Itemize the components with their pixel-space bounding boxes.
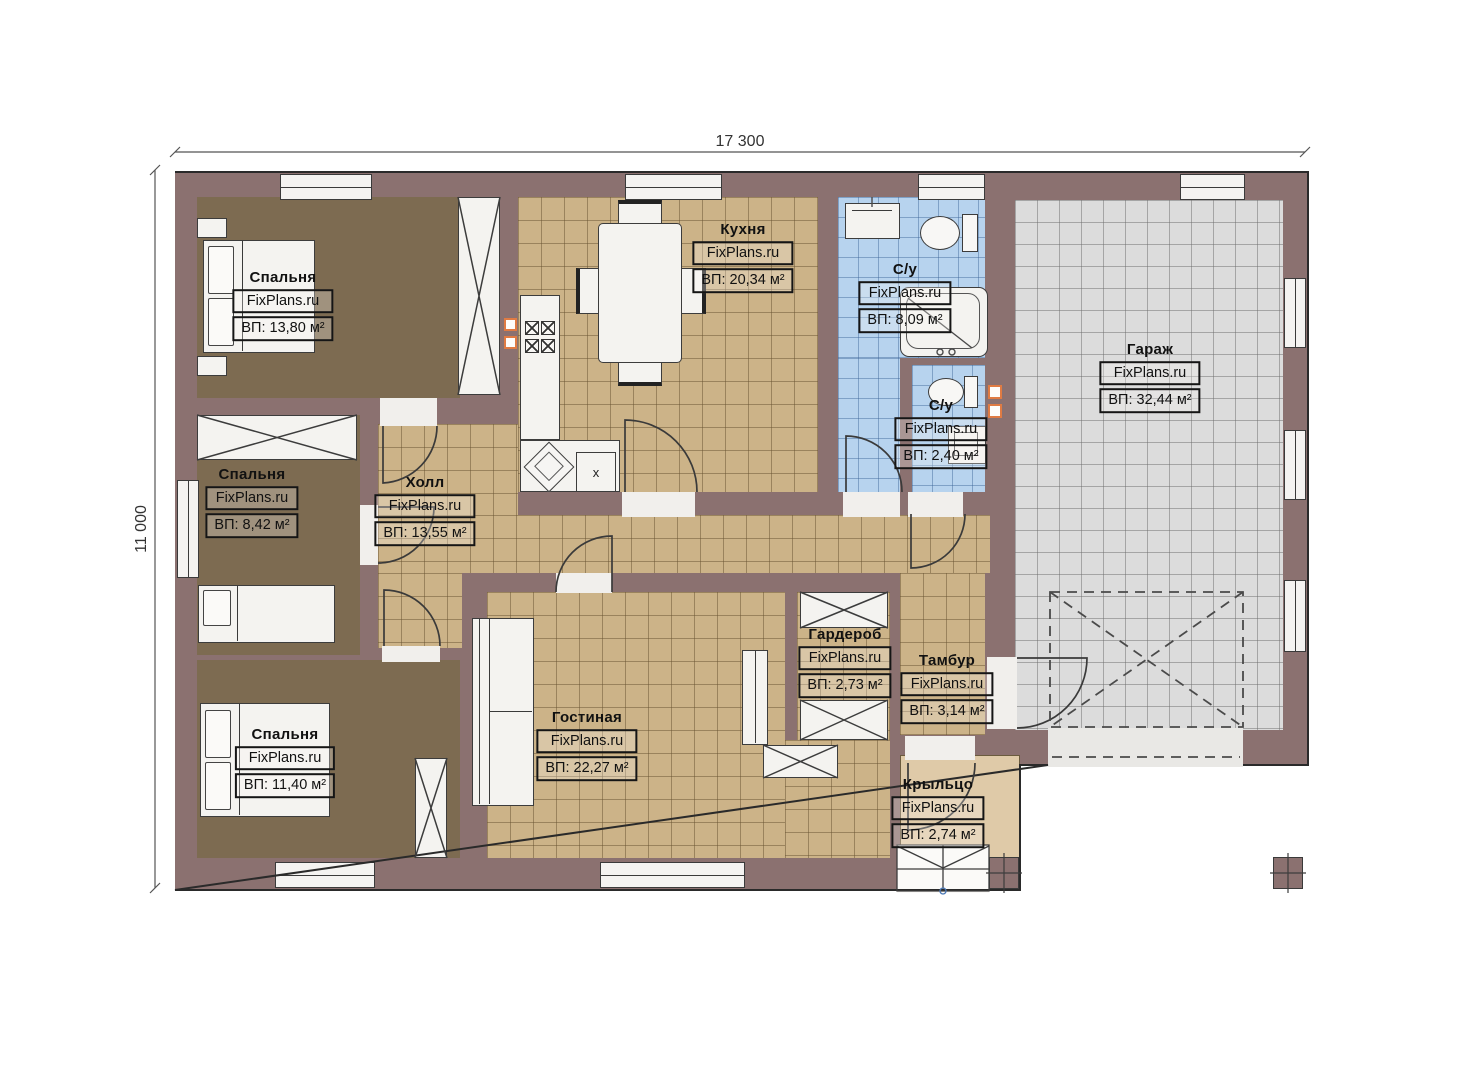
vent-marker-kitchen-1 [504, 318, 517, 331]
area-box: ВП: 13,80 м² [232, 317, 333, 341]
area-box: ВП: 8,09 м² [858, 309, 951, 333]
watermark-box: FixPlans.ru [536, 729, 637, 753]
watermark-box: FixPlans.ru [235, 746, 335, 770]
room-name: Спальня [235, 726, 335, 743]
door-arc-kitchen [625, 420, 697, 492]
watermark-box: FixPlans.ru [205, 486, 298, 510]
room-label-porch: Крыльцо FixPlans.ru ВП: 2,74 м² [891, 776, 984, 848]
area-box: ВП: 20,34 м² [692, 269, 793, 293]
watermark-box: FixPlans.ru [891, 796, 984, 820]
door-arc-living [556, 536, 612, 592]
parking-space-dashed-x [1050, 592, 1243, 727]
room-label-garage: Гараж FixPlans.ru ВП: 32,44 м² [1099, 341, 1200, 413]
room-label-tambur: Тамбур FixPlans.ru ВП: 3,14 м² [900, 652, 993, 724]
room-label-hall: Холл FixPlans.ru ВП: 13,55 м² [374, 474, 475, 546]
area-box: ВП: 2,73 м² [798, 674, 891, 698]
vent-marker-bath-1 [988, 385, 1002, 399]
door-arc-garage [1017, 658, 1087, 728]
area-box: ВП: 8,42 м² [205, 514, 298, 538]
room-name: Гардероб [798, 626, 891, 643]
closet-living-x-mark [763, 745, 838, 778]
room-name: Кухня [692, 221, 793, 238]
room-name: С/у [858, 261, 951, 278]
room-label-bath2: С/у FixPlans.ru ВП: 2,40 м² [894, 397, 987, 469]
area-box: ВП: 32,44 м² [1099, 389, 1200, 413]
area-box: ВП: 2,74 м² [891, 824, 984, 848]
room-label-living: Гостиная FixPlans.ru ВП: 22,27 м² [536, 709, 637, 781]
room-label-bath1: С/у FixPlans.ru ВП: 8,09 м² [858, 261, 951, 333]
area-box: ВП: 13,55 м² [374, 522, 475, 546]
room-name: Спальня [205, 466, 298, 483]
watermark-box: FixPlans.ru [232, 289, 333, 313]
wardrobe3-x-mark [415, 758, 447, 858]
porch-column-crosshair [986, 853, 1022, 893]
bathtub-faucet [937, 349, 943, 355]
closet-b-x-mark [800, 700, 888, 740]
watermark-box: FixPlans.ru [1099, 361, 1200, 385]
area-box: ВП: 22,27 м² [536, 757, 637, 781]
watermark-box: FixPlans.ru [858, 281, 951, 305]
room-name: Тамбур [900, 652, 993, 669]
watermark-box: FixPlans.ru [374, 494, 475, 518]
watermark-box: FixPlans.ru [894, 417, 987, 441]
watermark-box: FixPlans.ru [798, 646, 891, 670]
area-box: ВП: 3,14 м² [900, 700, 993, 724]
area-box: ВП: 11,40 м² [235, 774, 335, 798]
room-name: Гараж [1099, 341, 1200, 358]
watermark-box: FixPlans.ru [692, 241, 793, 265]
room-name: Крыльцо [891, 776, 984, 793]
room-name: Спальня [232, 269, 333, 286]
room-name: Холл [374, 474, 475, 491]
dimension-label-height: 11 000 [133, 505, 151, 553]
floor-plan-canvas: х [0, 0, 1473, 1080]
area-box: ВП: 2,40 м² [894, 445, 987, 469]
door-arc-bath2 [911, 514, 965, 568]
room-label-bedroom3: Спальня FixPlans.ru ВП: 11,40 м² [235, 726, 335, 798]
room-label-bedroom2: Спальня FixPlans.ru ВП: 8,42 м² [205, 466, 298, 538]
plan-linework [0, 0, 1473, 1080]
room-label-bedroom1: Спальня FixPlans.ru ВП: 13,80 м² [232, 269, 333, 341]
wardrobe2-x-mark [197, 415, 357, 460]
dimension-label-width: 17 300 [716, 133, 765, 151]
door-arc-bedroom3 [384, 590, 440, 646]
closet-a-x-mark [800, 592, 888, 628]
vent-marker-kitchen-2 [504, 336, 517, 349]
room-label-kitchen: Кухня FixPlans.ru ВП: 20,34 м² [692, 221, 793, 293]
bathtub-faucet [949, 349, 955, 355]
watermark-box: FixPlans.ru [900, 672, 993, 696]
room-name: С/у [894, 397, 987, 414]
room-label-wardrobe: Гардероб FixPlans.ru ВП: 2,73 м² [798, 626, 891, 698]
canopy-column-crosshair [1270, 853, 1306, 893]
vent-marker-bath-2 [988, 404, 1002, 418]
room-name: Гостиная [536, 709, 637, 726]
wardrobe1-x-mark [458, 197, 500, 395]
